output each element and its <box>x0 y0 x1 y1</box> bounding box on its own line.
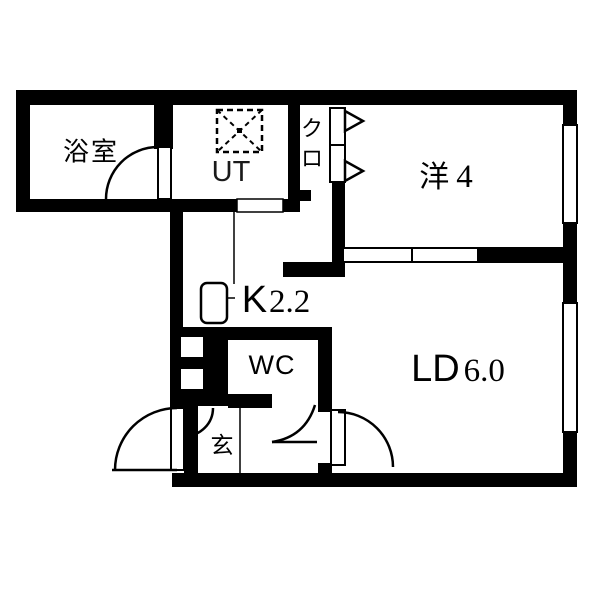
right-wall-mid <box>563 223 577 303</box>
right-wall-top <box>563 90 577 125</box>
closet-corner-block <box>300 190 311 201</box>
partition-wall-right <box>478 247 563 263</box>
room-label-utility: UT <box>212 158 251 187</box>
window-living <box>563 303 577 432</box>
ld-door-leaf <box>331 410 345 465</box>
top-wall <box>16 90 577 105</box>
living-dining-size: 6.0 <box>464 355 505 388</box>
room-label-closet: クロ <box>301 114 324 173</box>
ut-bottom-wall-right <box>283 199 300 212</box>
kitchen-upper-wall <box>283 262 345 277</box>
left-wall-lower <box>170 212 183 327</box>
living-dining-name: LD <box>411 350 460 388</box>
sliding-door-panel-2 <box>412 248 478 262</box>
wc-bottom-wall <box>228 394 272 408</box>
room-label-kitchen: K 2.2 <box>242 281 311 319</box>
ut-bottom-wall-left <box>173 199 237 212</box>
wc-door-arc <box>272 405 315 442</box>
western-room-name: 洋 <box>419 163 449 193</box>
room-label-living-dining: LD 6.0 <box>411 350 505 388</box>
room-label-bath: 浴室 <box>63 138 119 164</box>
closet-door-panel-1 <box>330 108 345 145</box>
bottom-wall <box>172 473 577 487</box>
closet-door-panel-2 <box>330 145 345 182</box>
kitchen-name: K <box>242 281 267 319</box>
bath-door-leaf <box>158 147 171 199</box>
ut-closet-divider <box>288 105 300 212</box>
sliding-door-panel-1 <box>343 248 412 262</box>
ld-left-wall-upper <box>318 327 332 412</box>
entrance-door-leaf <box>171 408 184 470</box>
ut-opening <box>237 199 283 212</box>
ld-left-wall-lower <box>318 463 332 473</box>
kitchen-size: 2.2 <box>269 286 310 319</box>
kitchen-sink <box>201 283 227 323</box>
left-wall-upper <box>16 90 30 212</box>
room-label-western-room: 洋 4 <box>419 161 473 194</box>
entrance-left-wall <box>184 403 198 473</box>
washer-pan-center-dot <box>237 128 242 133</box>
room-label-entrance: 玄 <box>211 434 234 457</box>
window-western-room <box>563 125 577 223</box>
closet-fold-arrow-2 <box>345 161 363 181</box>
bath-bottom-wall <box>16 199 185 212</box>
floorplan: 浴室 UT クロ 洋 4 K 2.2 WC LD 6.0 玄 <box>0 0 600 600</box>
shoe-cabinet-cell-1 <box>181 337 203 357</box>
closet-fold-arrow-1 <box>345 111 363 131</box>
entrance-top-patch <box>170 398 198 408</box>
entrance-door-arc <box>115 408 177 470</box>
western-room-size: 4 <box>456 161 473 194</box>
bath-ut-divider <box>154 105 173 149</box>
ld-door-arc <box>338 412 393 467</box>
room-label-wc: WC <box>249 352 296 379</box>
shoe-cabinet-cell-2 <box>181 369 203 389</box>
